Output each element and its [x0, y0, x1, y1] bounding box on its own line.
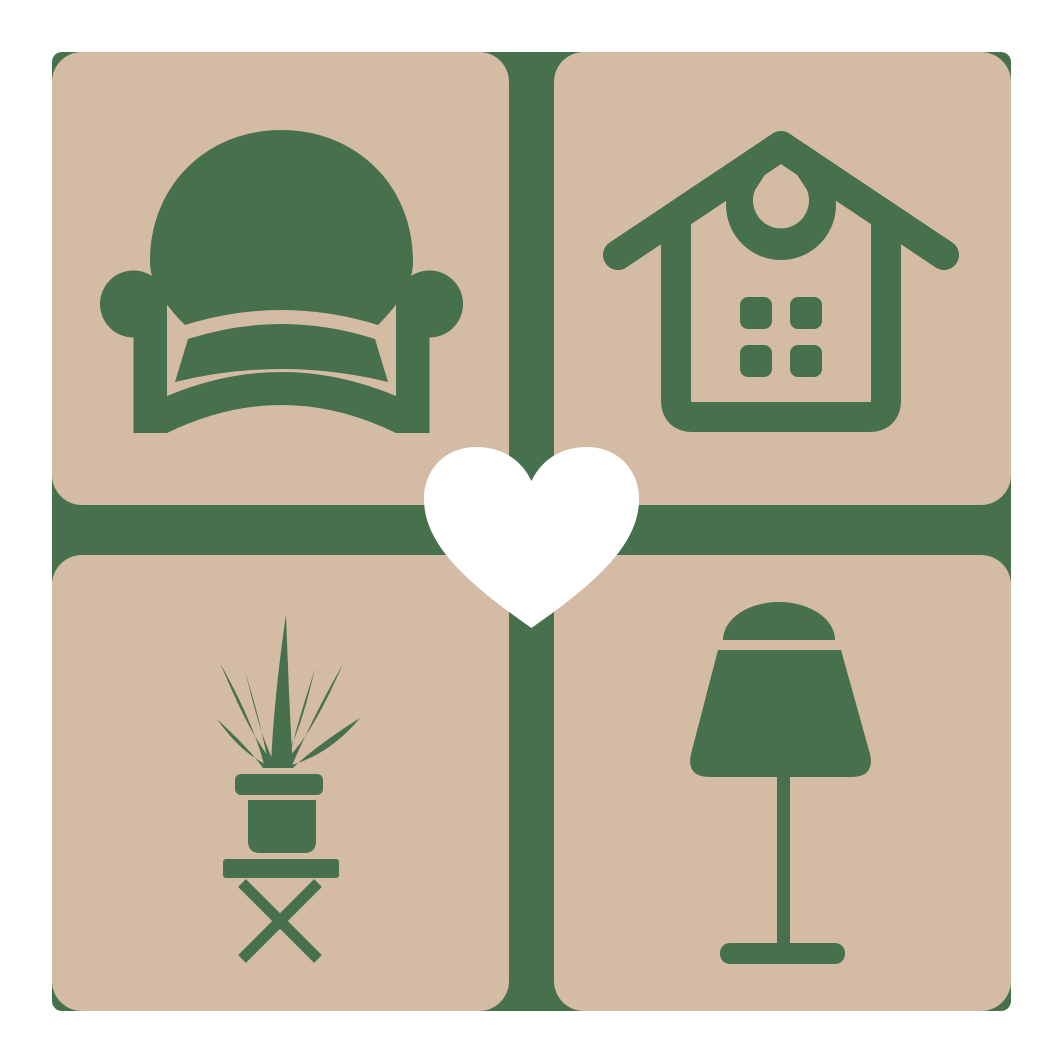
house-window-pane	[790, 345, 822, 377]
house-window-pane	[790, 297, 822, 329]
plant-pot-rim	[235, 774, 323, 795]
furniture-home-logo	[0, 0, 1063, 1063]
house-window-pane	[740, 297, 772, 329]
plant-pot-body	[248, 800, 316, 853]
stool-top	[223, 859, 339, 878]
lamp-base	[720, 943, 845, 964]
lamp-shade	[690, 650, 871, 777]
lamp-stem	[777, 774, 790, 948]
armchair-left-leg	[134, 304, 168, 433]
tile-top-right	[554, 52, 1011, 505]
armchair-right-leg	[396, 304, 430, 433]
house-window-pane	[740, 345, 772, 377]
